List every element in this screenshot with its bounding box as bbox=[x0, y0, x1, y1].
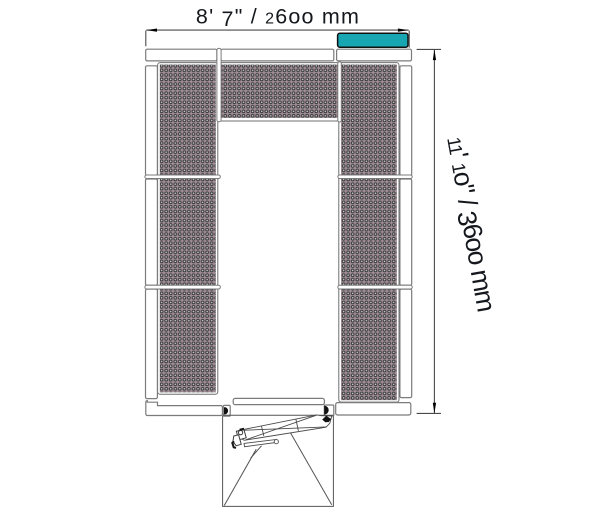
svg-text:8' 7" / 26oo mm: 8' 7" / 26oo mm bbox=[196, 4, 360, 31]
